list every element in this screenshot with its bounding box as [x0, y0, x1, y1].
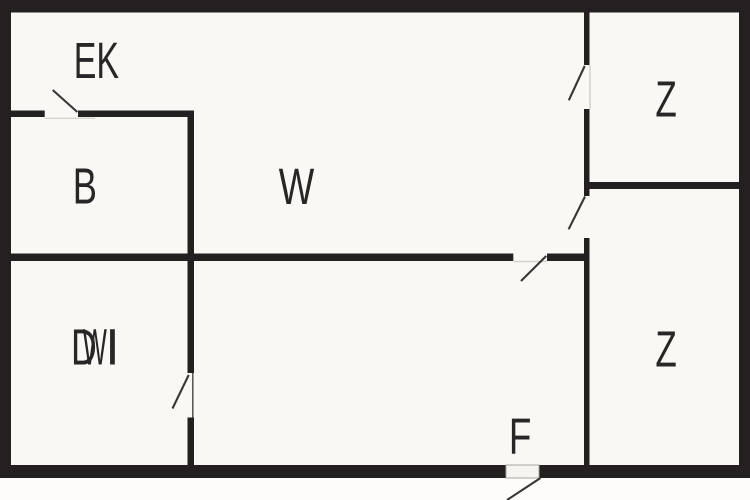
svg-text:I: I [105, 319, 119, 376]
svg-text:W: W [83, 319, 107, 376]
svg-text:Z: Z [655, 321, 676, 378]
svg-text:B: B [73, 157, 97, 214]
svg-text:EK: EK [74, 32, 119, 89]
svg-text:W: W [279, 158, 315, 215]
svg-text:F: F [509, 408, 532, 465]
svg-text:Z: Z [655, 70, 676, 127]
